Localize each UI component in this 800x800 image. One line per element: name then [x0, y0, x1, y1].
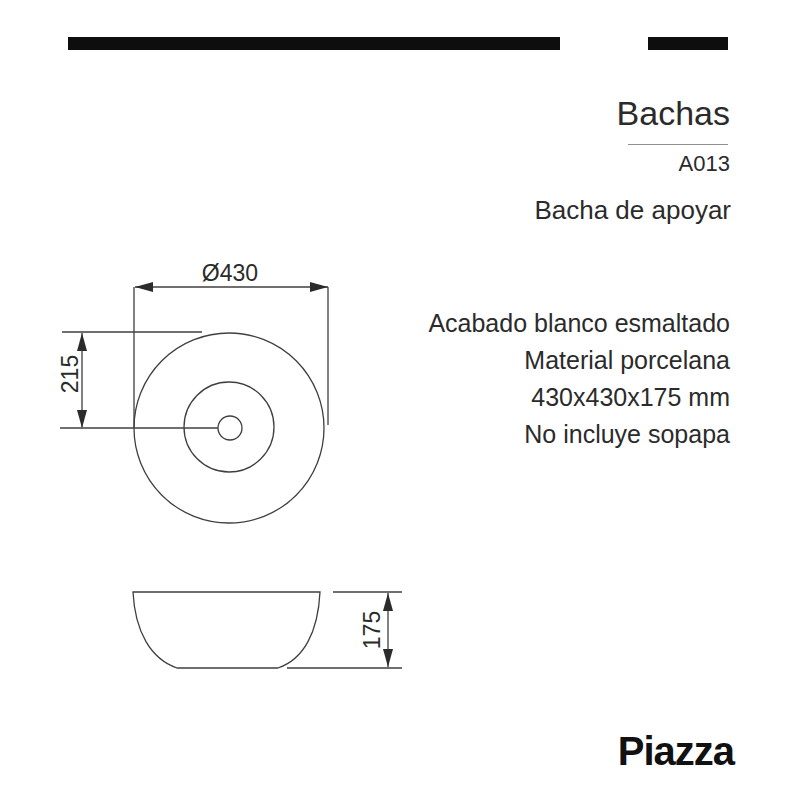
sink-side-profile — [133, 592, 320, 668]
arrowhead-up-icon — [383, 593, 393, 611]
technical-drawing-svg — [0, 0, 800, 800]
arrowhead-right-icon — [310, 282, 328, 292]
height-dimension-label: 175 — [360, 598, 384, 662]
arrowhead-down-icon — [383, 649, 393, 667]
arrowhead-down-icon — [77, 410, 87, 428]
brand-logo: Piazza — [618, 731, 734, 771]
top-view-drawing — [60, 282, 328, 523]
drain-circle — [218, 416, 242, 440]
diameter-dimension-label: Ø430 — [190, 261, 270, 285]
sink-basin-circle — [184, 382, 274, 472]
radius-dimension-label: 215 — [58, 342, 82, 406]
arrowhead-left-icon — [135, 282, 153, 292]
spec-sheet: Bachas A013 Bacha de apoyar Acabado blan… — [0, 0, 800, 800]
